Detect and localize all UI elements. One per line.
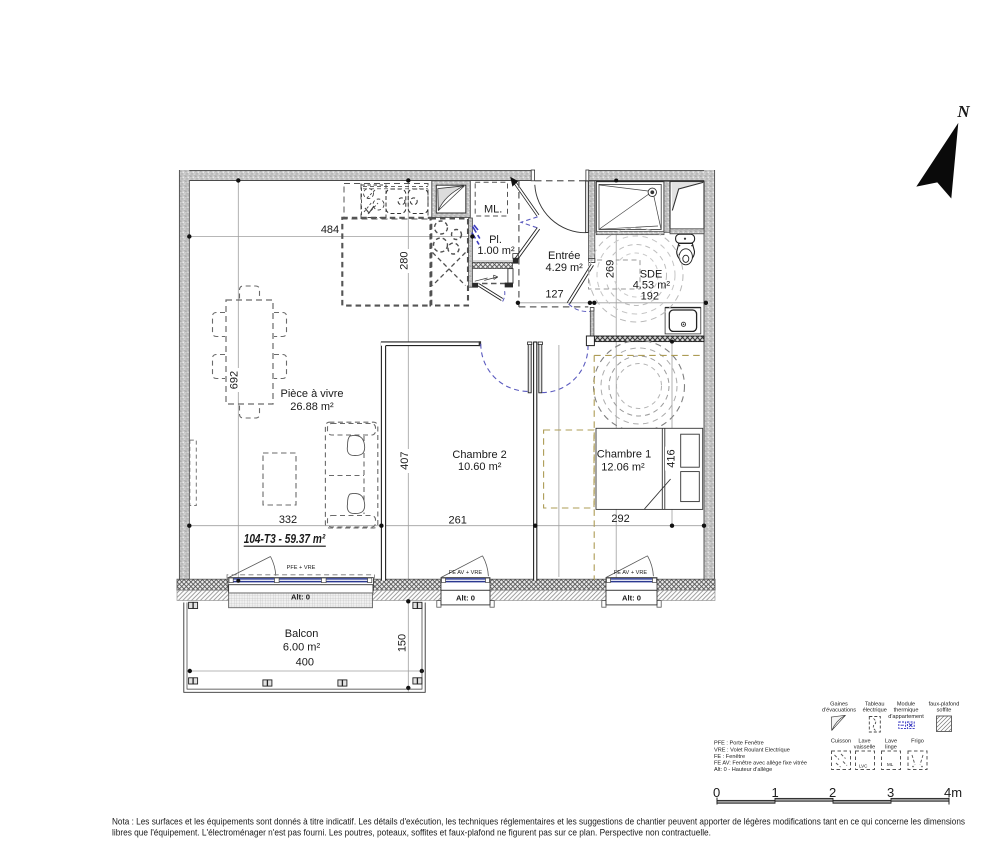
svg-text:Chambre 2: Chambre 2 — [452, 449, 506, 461]
svg-text:Pl.: Pl. — [489, 234, 502, 246]
svg-text:Balcon: Balcon — [285, 628, 319, 640]
svg-text:VRE : Volet Roulant Electriqu: VRE : Volet Roulant Electrique — [714, 748, 790, 754]
svg-text:Nota : Les surfaces et les équ: Nota : Les surfaces et les équipements s… — [112, 817, 966, 827]
svg-text:Entrée: Entrée — [548, 250, 580, 262]
svg-text:192: 192 — [641, 290, 659, 302]
svg-text:10.60 m²: 10.60 m² — [458, 461, 502, 473]
svg-text:292: 292 — [611, 513, 629, 525]
svg-text:d'appartement: d'appartement — [888, 714, 924, 720]
svg-text:484: 484 — [321, 224, 339, 236]
svg-text:thermique: thermique — [894, 708, 919, 714]
svg-text:4.29 m²: 4.29 m² — [546, 262, 584, 274]
svg-text:libres que l'équipement. L'éle: libres que l'équipement. L'électroménage… — [112, 827, 711, 837]
svg-text:Cuisson: Cuisson — [831, 738, 851, 744]
svg-text:N: N — [956, 102, 970, 121]
svg-text:ML: ML — [887, 762, 894, 767]
svg-text:407: 407 — [399, 452, 411, 470]
svg-text:150: 150 — [396, 634, 408, 652]
svg-text:26.88 m²: 26.88 m² — [290, 401, 334, 413]
svg-text:Tableau: Tableau — [865, 701, 885, 707]
svg-text:PFE + VRE: PFE + VRE — [287, 565, 316, 571]
svg-text:soffite: soffite — [937, 708, 952, 714]
svg-text:1: 1 — [772, 785, 779, 800]
svg-text:12.06 m²: 12.06 m² — [601, 462, 645, 474]
svg-text:6.00 m²: 6.00 m² — [283, 642, 321, 654]
svg-text:FE AV + VRE: FE AV + VRE — [449, 570, 483, 576]
svg-text:Alt: 0: Alt: 0 — [456, 594, 475, 603]
svg-text:692: 692 — [229, 371, 241, 389]
svg-text:104-T3 - 59.37 m²: 104-T3 - 59.37 m² — [244, 532, 326, 546]
svg-text:Alt: 0: Alt: 0 — [291, 592, 310, 601]
svg-text:4.53 m²: 4.53 m² — [633, 279, 671, 291]
svg-text:4m: 4m — [944, 785, 962, 800]
svg-text:269: 269 — [604, 260, 616, 278]
svg-text:Frigo: Frigo — [911, 738, 924, 744]
svg-text:FE AV: Fenêtre avec allège fix: FE AV: Fenêtre avec allège fixe vitrée — [714, 761, 807, 767]
svg-text:127: 127 — [545, 288, 563, 300]
svg-text:Module: Module — [897, 701, 915, 707]
svg-text:vaisselle: vaisselle — [854, 745, 875, 751]
svg-text:électrique: électrique — [863, 708, 887, 714]
svg-text:400: 400 — [296, 657, 314, 669]
svg-text:416: 416 — [666, 449, 678, 467]
svg-text:280: 280 — [398, 252, 410, 270]
svg-text:FE : Fenêtre: FE : Fenêtre — [714, 754, 745, 760]
svg-text:linge: linge — [885, 745, 897, 751]
svg-text:PFE : Porte Fenêtre: PFE : Porte Fenêtre — [714, 741, 764, 747]
svg-text:332: 332 — [279, 514, 297, 526]
svg-text:Lave: Lave — [885, 738, 897, 744]
svg-text:Alt: 0: Alt: 0 — [622, 594, 641, 603]
svg-text:261: 261 — [449, 514, 467, 526]
svg-text:d'évacuations: d'évacuations — [822, 708, 856, 714]
svg-text:Chambre 1: Chambre 1 — [597, 449, 651, 461]
svg-text:Pièce à vivre: Pièce à vivre — [281, 388, 344, 400]
svg-text:faux-plafond: faux-plafond — [929, 701, 960, 707]
svg-text:Alt: 0 - Hauteur d'allège: Alt: 0 - Hauteur d'allège — [714, 767, 772, 773]
svg-text:LVC: LVC — [859, 764, 868, 769]
svg-text:Gaines: Gaines — [830, 701, 848, 707]
svg-text:ML.: ML. — [484, 204, 502, 216]
svg-text:Lave: Lave — [858, 738, 870, 744]
svg-text:1.00 m²: 1.00 m² — [477, 245, 515, 257]
svg-text:2: 2 — [829, 785, 836, 800]
svg-text:FE AV + VRE: FE AV + VRE — [614, 570, 648, 576]
svg-text:3: 3 — [887, 785, 894, 800]
